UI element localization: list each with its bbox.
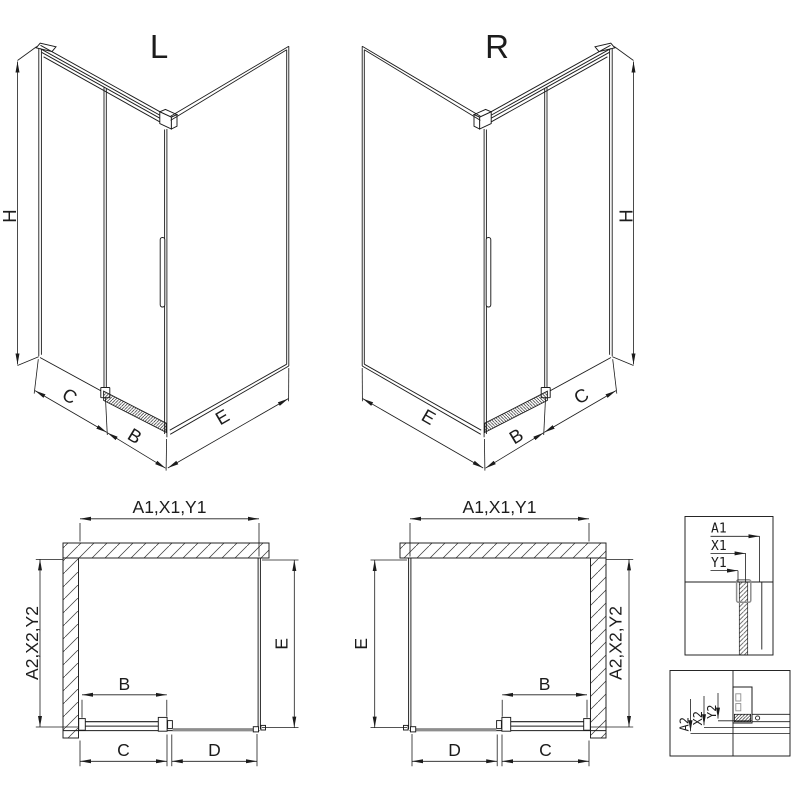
dim-label-c-left: C (59, 383, 81, 408)
view-3d-left: L H C B E (0, 28, 289, 471)
dim-label-c-plan-left: C (117, 740, 130, 760)
enclosure-3d-right-geometry (362, 43, 633, 470)
dim-label-c-plan-right: C (539, 740, 552, 760)
dim-label-a1x1y1-right: A1,X1,Y1 (463, 497, 537, 517)
dim-label-b-plan-right: B (539, 674, 551, 694)
dim-label-d-plan-left: D (208, 740, 221, 760)
dim-label-e-right: E (418, 405, 439, 429)
wall-profile-hatch (739, 582, 747, 655)
wall-top-right-plan (400, 543, 606, 558)
dim-label-a1x1y1-left: A1,X1,Y1 (133, 497, 207, 517)
plan-view-left: A1,X1,Y1 A2,X2,Y2 E B C D (22, 497, 299, 766)
wall-top-left-plan (63, 543, 269, 558)
detail-label-y1: Y1 (711, 556, 727, 571)
dim-label-c-right: C (570, 383, 592, 408)
view-3d-right: R H C B E (362, 28, 636, 471)
shower-enclosure-technical-drawing: L H C B E R H C B E A1,X1,Y1 A2,X2,Y2 E … (0, 0, 800, 800)
roller-detail (756, 716, 760, 720)
view-title-left: L (150, 28, 168, 65)
wall-side-right-plan (591, 558, 607, 738)
technical-drawing-page: L H C B E R H C B E A1,X1,Y1 A2,X2,Y2 E … (0, 0, 800, 800)
dim-label-e-left: E (212, 405, 233, 429)
detail-label-y2: Y2 (705, 705, 719, 719)
detail-label-a1: A1 (711, 522, 727, 537)
detail-view-a1x1y1: A1 X1 Y1 (685, 517, 773, 656)
dim-label-e-plan-right: E (351, 638, 371, 650)
dim-label-a2x2y2-left: A2,X2,Y2 (22, 606, 42, 680)
detail-label-a2: A2 (678, 717, 692, 731)
dim-label-h-left: H (0, 209, 20, 222)
dim-label-b-plan-left: B (119, 674, 131, 694)
plan-view-right: A1,X1,Y1 A2,X2,Y2 E B C D (351, 497, 633, 766)
view-title-right: R (485, 28, 509, 65)
detail-label-x1: X1 (711, 539, 727, 554)
wall-side-left-plan (63, 558, 79, 738)
detail-view-a2x2y2: A2 X2 Y2 (670, 671, 790, 757)
dim-label-a2x2y2-right: A2,X2,Y2 (606, 606, 626, 680)
dim-label-d-plan-right: D (448, 740, 461, 760)
dim-label-e-plan-left: E (272, 638, 292, 650)
detail-label-x2: X2 (691, 711, 705, 725)
dim-label-h-right: H (616, 209, 637, 222)
enclosure-3d-left-geometry (18, 43, 289, 470)
